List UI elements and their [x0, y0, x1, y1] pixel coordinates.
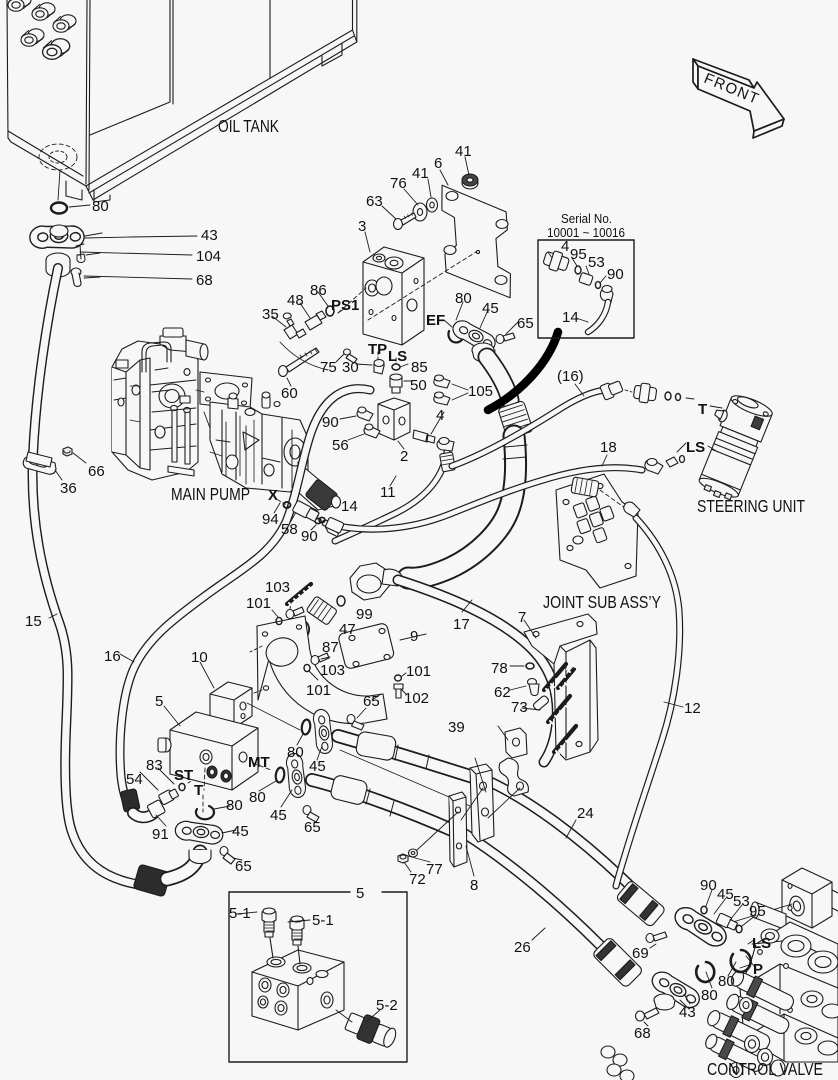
svg-text:(16): (16)	[557, 368, 584, 385]
svg-text:5: 5	[155, 693, 163, 710]
svg-text:90: 90	[607, 266, 624, 283]
svg-text:43: 43	[679, 1004, 696, 1021]
svg-text:99: 99	[356, 606, 373, 623]
svg-text:TP: TP	[368, 341, 387, 358]
svg-text:75: 75	[320, 359, 337, 376]
svg-text:80: 80	[701, 987, 718, 1004]
svg-text:MAIN PUMP: MAIN PUMP	[171, 484, 250, 504]
svg-text:105: 105	[468, 383, 493, 400]
svg-text:68: 68	[196, 272, 213, 289]
svg-text:50: 50	[410, 377, 427, 394]
svg-text:LS: LS	[686, 439, 705, 456]
svg-text:65: 65	[235, 858, 252, 875]
svg-text:10: 10	[191, 649, 208, 666]
svg-text:30: 30	[342, 359, 359, 376]
svg-text:102: 102	[404, 690, 429, 707]
svg-text:4: 4	[436, 407, 444, 424]
svg-text:68: 68	[634, 1025, 651, 1042]
svg-text:95: 95	[749, 903, 766, 920]
svg-text:101: 101	[406, 663, 431, 680]
svg-text:90: 90	[301, 528, 318, 545]
svg-text:45: 45	[482, 300, 499, 317]
svg-text:EF: EF	[426, 312, 445, 329]
svg-text:6: 6	[434, 155, 442, 172]
svg-text:76: 76	[390, 175, 407, 192]
svg-text:OIL TANK: OIL TANK	[218, 116, 279, 136]
svg-text:15: 15	[25, 613, 42, 630]
svg-text:LS: LS	[388, 348, 407, 365]
svg-text:80: 80	[249, 789, 266, 806]
svg-text:43: 43	[201, 227, 218, 244]
svg-text:83: 83	[146, 757, 163, 774]
svg-text:14: 14	[341, 498, 358, 515]
svg-text:103: 103	[265, 579, 290, 596]
svg-text:80: 80	[92, 198, 109, 215]
svg-text:101: 101	[306, 682, 331, 699]
svg-text:65: 65	[304, 819, 321, 836]
svg-text:16: 16	[104, 648, 121, 665]
svg-text:54: 54	[126, 771, 143, 788]
svg-text:104: 104	[196, 248, 221, 265]
svg-text:56: 56	[332, 437, 349, 454]
svg-text:17: 17	[453, 616, 470, 633]
svg-text:45: 45	[309, 758, 326, 775]
svg-text:90: 90	[700, 877, 717, 894]
svg-text:35: 35	[262, 306, 279, 323]
svg-text:ST: ST	[174, 767, 193, 784]
svg-text:45: 45	[270, 807, 287, 824]
svg-text:80: 80	[455, 290, 472, 307]
svg-text:14: 14	[562, 309, 579, 326]
svg-text:87: 87	[322, 639, 339, 656]
svg-text:MT: MT	[248, 754, 270, 771]
svg-text:P: P	[753, 961, 763, 978]
svg-text:80: 80	[718, 973, 735, 990]
svg-text:77: 77	[426, 861, 443, 878]
svg-text:4: 4	[561, 238, 569, 255]
svg-text:69: 69	[632, 945, 649, 962]
svg-text:11: 11	[380, 484, 396, 501]
svg-text:62: 62	[494, 684, 511, 701]
svg-text:Serial No.: Serial No.	[561, 211, 612, 226]
svg-text:60: 60	[281, 385, 298, 402]
svg-text:7: 7	[518, 609, 526, 626]
svg-text:66: 66	[88, 463, 105, 480]
svg-text:39: 39	[448, 719, 465, 736]
svg-text:T: T	[698, 401, 707, 418]
svg-text:58: 58	[281, 521, 298, 538]
svg-text:41: 41	[455, 143, 472, 160]
svg-text:63: 63	[366, 193, 383, 210]
svg-text:JOINT SUB ASS’Y: JOINT SUB ASS’Y	[543, 592, 661, 612]
svg-text:90: 90	[322, 414, 339, 431]
svg-text:65: 65	[363, 693, 380, 710]
svg-text:LS: LS	[752, 935, 771, 952]
svg-text:12: 12	[684, 700, 701, 717]
svg-text:94: 94	[262, 511, 279, 528]
svg-text:18: 18	[600, 439, 617, 456]
svg-text:65: 65	[517, 315, 534, 332]
svg-text:101: 101	[246, 595, 271, 612]
svg-text:36: 36	[60, 480, 77, 497]
svg-text:53: 53	[733, 893, 750, 910]
svg-text:48: 48	[287, 292, 304, 309]
svg-text:X: X	[268, 487, 278, 504]
svg-text:86: 86	[310, 282, 327, 299]
svg-text:24: 24	[577, 805, 594, 822]
svg-text:5: 5	[356, 885, 364, 902]
svg-text:103: 103	[320, 662, 345, 679]
svg-text:STEERING UNIT: STEERING UNIT	[697, 496, 805, 516]
svg-text:72: 72	[409, 871, 426, 888]
svg-text:85: 85	[411, 359, 428, 376]
svg-text:26: 26	[514, 939, 531, 956]
svg-text:53: 53	[588, 254, 605, 271]
svg-text:3: 3	[358, 218, 366, 235]
svg-text:T: T	[194, 782, 203, 799]
svg-text:5-1: 5-1	[312, 912, 334, 929]
svg-text:45: 45	[232, 823, 249, 840]
svg-text:95: 95	[570, 246, 587, 263]
svg-text:5-1: 5-1	[229, 905, 251, 922]
svg-text:47: 47	[339, 621, 356, 638]
svg-text:73: 73	[511, 699, 528, 716]
svg-text:PS1: PS1	[331, 297, 359, 314]
svg-text:78: 78	[491, 660, 508, 677]
svg-text:CONTROL VALVE: CONTROL VALVE	[707, 1059, 823, 1079]
svg-text:10001 ~ 10016: 10001 ~ 10016	[547, 225, 625, 240]
svg-text:5-2: 5-2	[376, 997, 398, 1014]
svg-text:45: 45	[717, 886, 734, 903]
svg-text:80: 80	[226, 797, 243, 814]
svg-text:41: 41	[412, 165, 429, 182]
svg-text:8: 8	[470, 877, 478, 894]
svg-text:80: 80	[287, 744, 304, 761]
svg-text:2: 2	[400, 448, 408, 465]
svg-text:91: 91	[152, 826, 169, 843]
